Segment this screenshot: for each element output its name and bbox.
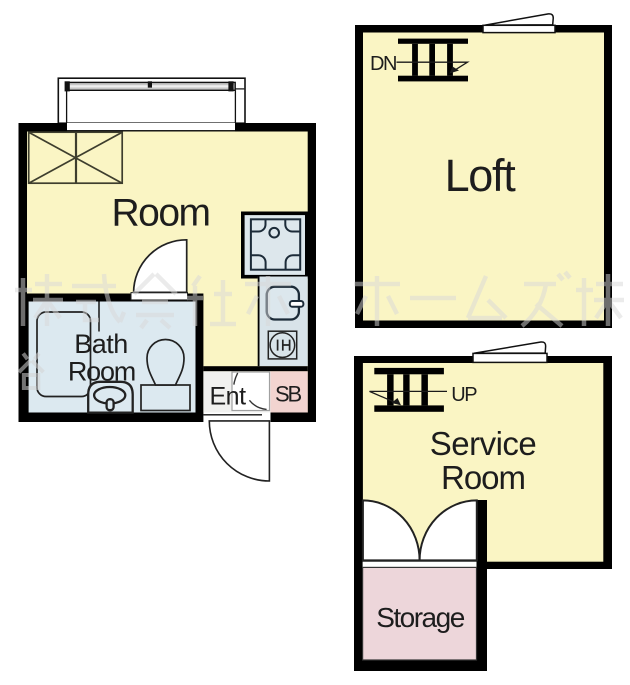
svg-text:Bath: Bath [74,329,128,359]
svg-text:SB: SB [275,381,301,406]
svg-text:Service: Service [430,425,537,462]
svg-text:Room: Room [68,357,135,387]
svg-text:UP: UP [451,384,477,406]
svg-text:Ent: Ent [209,383,246,411]
svg-text:Room: Room [111,192,209,235]
svg-text:Loft: Loft [445,150,517,201]
svg-text:DN: DN [370,53,396,75]
svg-text:Room: Room [441,459,525,496]
svg-text:Storage: Storage [376,602,464,633]
